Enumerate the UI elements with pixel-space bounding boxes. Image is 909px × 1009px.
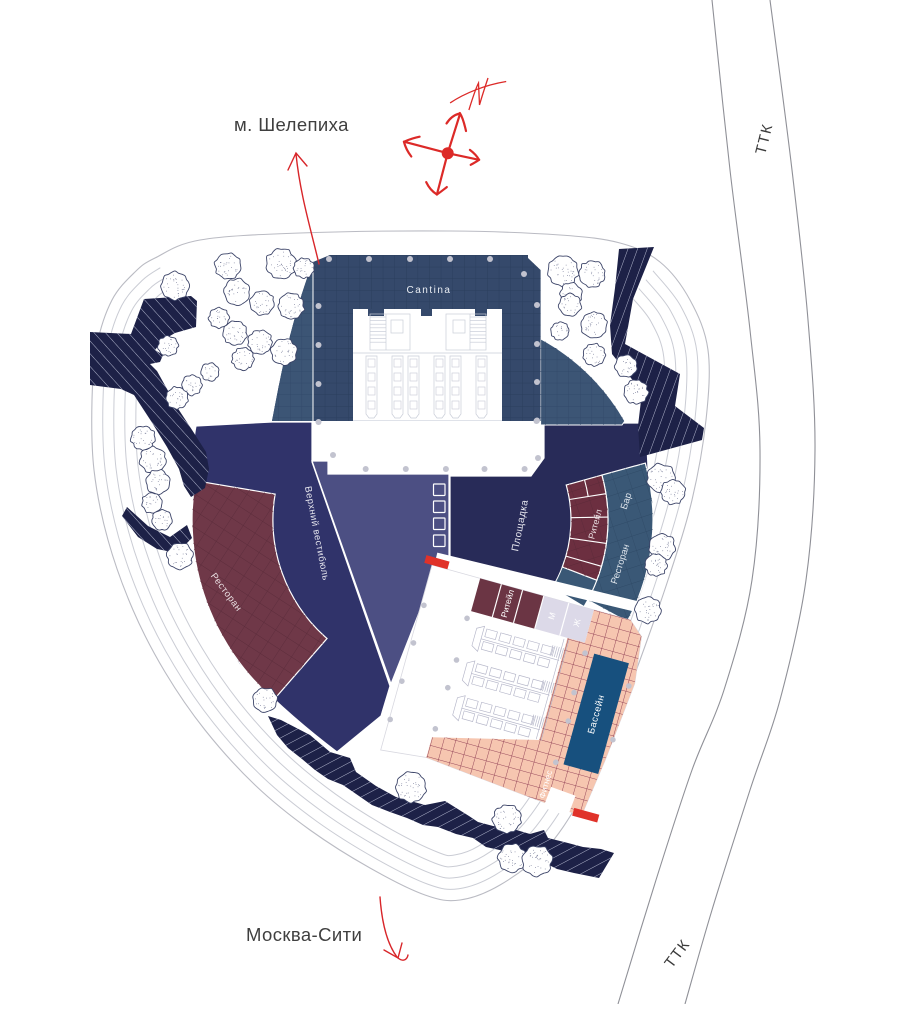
svg-text:Cantina: Cantina [407, 285, 452, 296]
svg-text:м. Шелепиха: м. Шелепиха [234, 114, 349, 135]
svg-text:Москва-Сити: Москва-Сити [246, 924, 362, 945]
